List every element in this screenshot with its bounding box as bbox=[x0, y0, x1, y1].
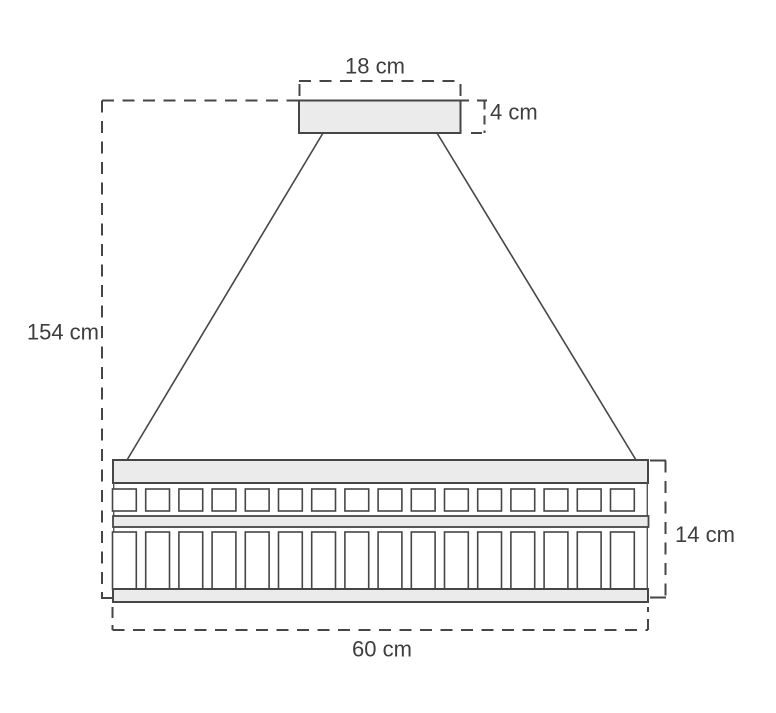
svg-text:154 cm: 154 cm bbox=[27, 320, 99, 345]
svg-text:60 cm: 60 cm bbox=[352, 637, 412, 662]
svg-text:4 cm: 4 cm bbox=[490, 100, 538, 125]
svg-text:14 cm: 14 cm bbox=[675, 522, 735, 547]
svg-text:18 cm: 18 cm bbox=[345, 54, 405, 79]
